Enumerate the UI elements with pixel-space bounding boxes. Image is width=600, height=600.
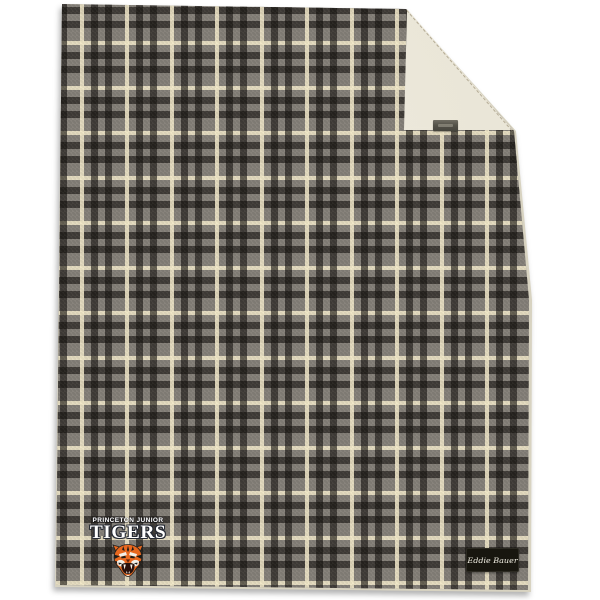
plaid-front-panel bbox=[0, 0, 600, 600]
brand-tag-text: Eddie Bauer bbox=[467, 556, 517, 565]
team-name-line2: TIGERS bbox=[83, 524, 173, 542]
blanket: Eddie Bauer PRINCETON JUNIOR TIGERS bbox=[0, 0, 600, 600]
team-logo: PRINCETON JUNIOR TIGERS bbox=[84, 517, 172, 578]
tiger-head-icon bbox=[112, 543, 144, 578]
brand-tag: Eddie Bauer bbox=[466, 548, 519, 572]
woven-label-tag bbox=[433, 120, 458, 131]
product-photo: Eddie Bauer PRINCETON JUNIOR TIGERS bbox=[0, 0, 600, 600]
